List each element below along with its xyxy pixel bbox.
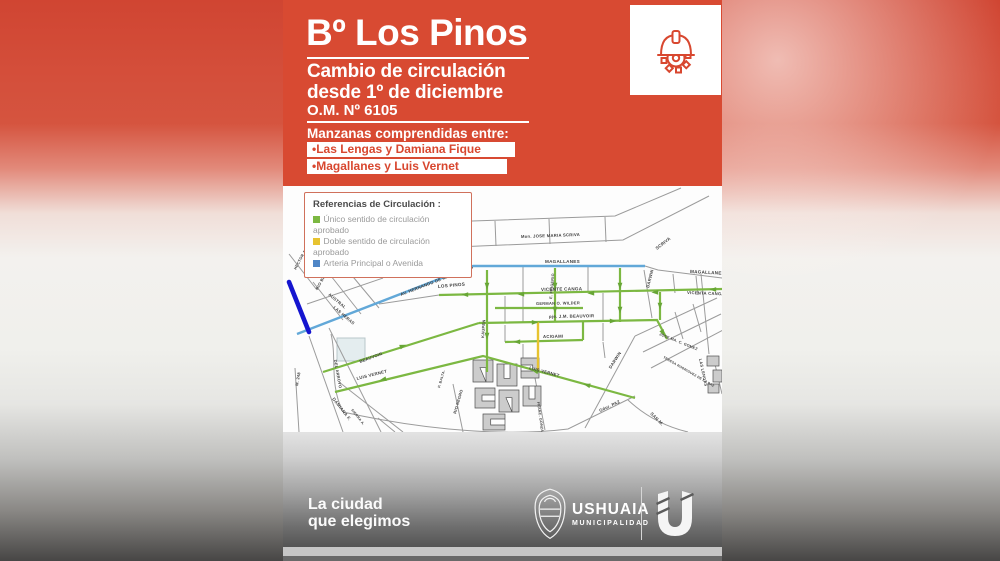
block-item: •Las Lengas y Damiana Fique [307, 142, 515, 157]
poster-header: Bº Los Pinos Cambio de circulación desde… [283, 0, 722, 186]
legend-swatch [313, 260, 320, 267]
street-label: VICENTE CANGA [541, 286, 583, 292]
tagline-line1: La ciudad [308, 496, 410, 513]
tagline: La ciudad que elegimos [308, 496, 410, 530]
divider [307, 121, 529, 123]
construction-helmet-gear-icon [650, 24, 702, 76]
street-label: Mon. JOSE MARIA SCRIVA [521, 232, 580, 239]
legend-item: Arteria Principal o Avenida [313, 258, 463, 269]
blurred-background-left [0, 0, 283, 561]
street-label: M. 248 [294, 371, 301, 386]
u-logo [655, 491, 695, 538]
blocks-heading: Manzanas comprendidas entre: [307, 126, 509, 141]
divider [641, 487, 642, 540]
subtitle-line1: Cambio de circulación [307, 61, 506, 82]
street-label: SCRIVA [655, 236, 673, 251]
poster-card: Bº Los Pinos Cambio de circulación desde… [283, 0, 722, 561]
street-label: VICENTA CANGA [687, 290, 722, 296]
street-label: pje. J.M. BEAUVOIR [549, 313, 595, 319]
legend-swatch [313, 238, 320, 245]
legend-item: Único sentido de circulación aprobado [313, 214, 463, 235]
subtitle-line2: desde 1º de diciembre [307, 82, 506, 103]
street-label: ACIGAMI [543, 334, 563, 339]
street-label: Gdor. PAZ [598, 399, 621, 413]
poster-footer: La ciudad que elegimos USHUAIA MUNICIPAL… [283, 432, 722, 547]
street-label: GERMAN O. WILDER [536, 300, 580, 306]
icon-box [630, 5, 721, 95]
street-label: SIERRA A. [350, 408, 365, 426]
footer-strip-light [283, 547, 722, 556]
street-label: RIO NEGRO [452, 389, 464, 415]
street-label: KAUPEN [480, 319, 486, 338]
page-title: Bº Los Pinos [306, 12, 527, 54]
tagline-line2: que elegimos [308, 513, 410, 530]
brand-subtitle: MUNICIPALIDAD [572, 520, 650, 527]
ordinance-number: O.M. Nº 6105 [307, 102, 398, 119]
street-label: FRANC. GONZALEZ [536, 402, 545, 432]
legend-items: Único sentido de circulación aprobadoDob… [313, 214, 463, 269]
brand-name: USHUAIA [572, 501, 650, 519]
block-item: •Magallanes y Luis Vernet [307, 159, 507, 174]
street-label: SAN M. [649, 411, 664, 426]
street-label: DARWIN [645, 269, 654, 288]
street-label: MAGALLANES [545, 259, 580, 264]
poster-subtitle: Cambio de circulación desde 1º de diciem… [307, 61, 506, 103]
legend: Referencias de Circulación : Único senti… [304, 192, 472, 278]
legend-swatch [313, 216, 320, 223]
street-label: LOS PINOS [438, 282, 466, 289]
divider [307, 57, 529, 59]
brand-text: USHUAIA MUNICIPALIDAD [572, 501, 650, 527]
street-label: DARWIN [608, 351, 623, 370]
legend-item: Doble sentido de circulación aprobado [313, 236, 463, 257]
municipality-shield-logo [530, 487, 570, 540]
legend-title: Referencias de Circulación : [313, 199, 463, 210]
blurred-background-right [722, 0, 1000, 561]
footer-strip-dark [283, 556, 722, 561]
street-label: P. BALTA. [437, 369, 446, 388]
